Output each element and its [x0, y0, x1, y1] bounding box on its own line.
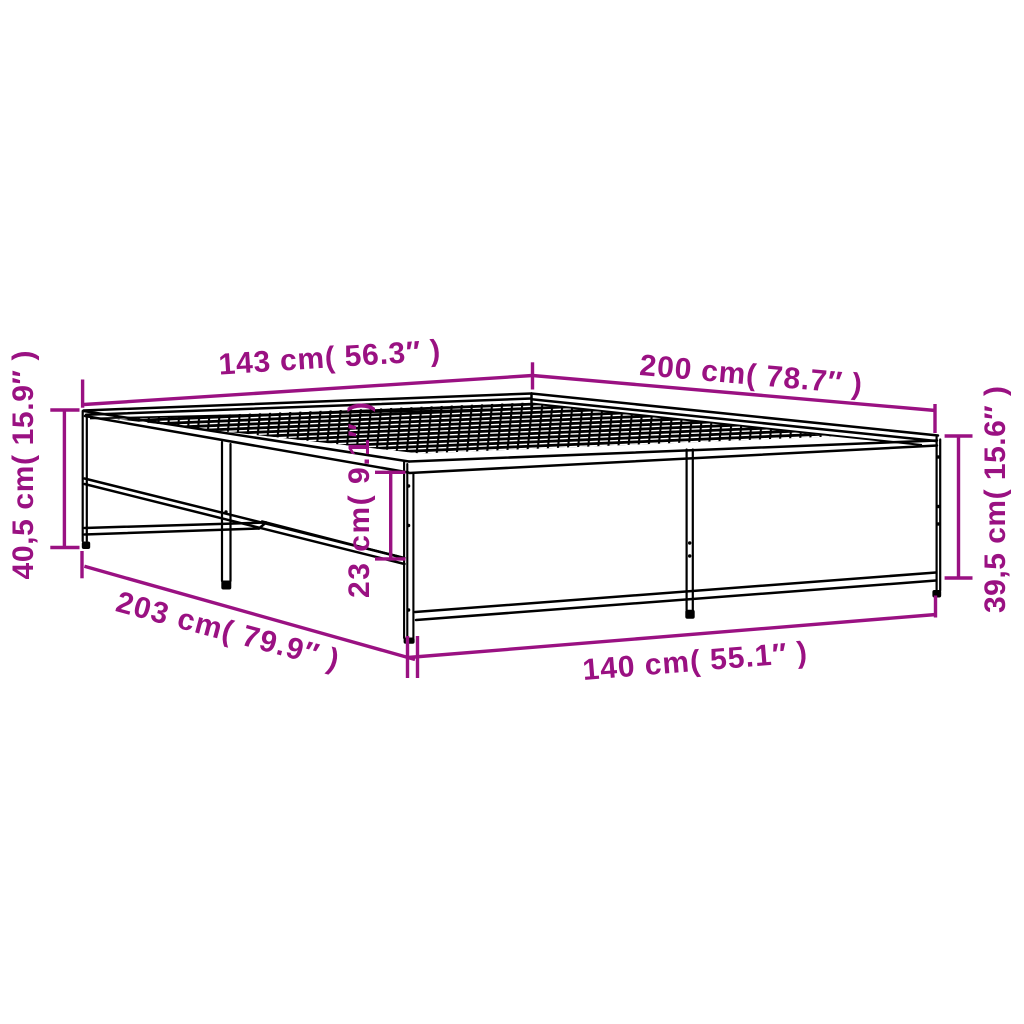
- svg-text:23 cm( 9.1″ ): 23 cm( 9.1″ ): [343, 402, 376, 598]
- svg-text:40,5 cm( 15.9″ ): 40,5 cm( 15.9″ ): [7, 351, 40, 580]
- svg-text:39,5 cm( 15.6″ ): 39,5 cm( 15.6″ ): [979, 386, 1012, 613]
